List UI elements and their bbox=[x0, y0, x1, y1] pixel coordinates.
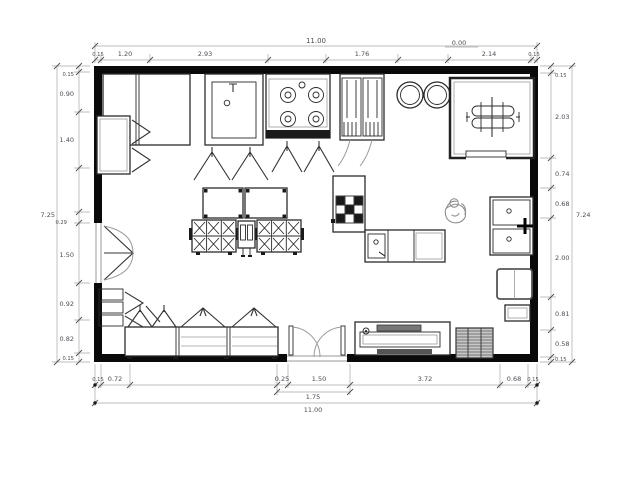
dim-label: 11.00 bbox=[304, 406, 323, 414]
dim-label: 0.15 bbox=[528, 52, 540, 58]
wall-left-lower bbox=[94, 283, 102, 362]
floor-grate bbox=[456, 328, 493, 358]
bottom-shelving bbox=[125, 305, 278, 359]
cabinet-door-swing bbox=[338, 140, 372, 166]
walk-in-cold-room bbox=[450, 78, 534, 161]
dim-left: 0.15 0.90 1.40 0.29 1.50 0.92 0.82 0.15 … bbox=[41, 63, 90, 365]
dim-label: 11.00 bbox=[306, 37, 326, 45]
burner-bank-left bbox=[189, 220, 239, 255]
dim-label: 2.00 bbox=[555, 254, 569, 262]
dim-label: 0.82 bbox=[60, 335, 74, 343]
double-swing-door bbox=[289, 326, 345, 357]
dim-label: 0.15 bbox=[62, 72, 74, 78]
wall-shelves bbox=[99, 289, 123, 326]
dim-label: 0.90 bbox=[60, 90, 74, 98]
dim-label: 1.76 bbox=[355, 50, 369, 58]
dim-label: 0.15 bbox=[62, 356, 74, 362]
sink-unit bbox=[205, 74, 263, 145]
dim-zero-label: 0.00 bbox=[452, 39, 466, 47]
prep-tables bbox=[203, 188, 287, 218]
counter-door-chevrons bbox=[194, 141, 334, 180]
side-swing-door bbox=[104, 226, 133, 280]
dim-label: 1.40 bbox=[60, 136, 74, 144]
dim-label: 0.92 bbox=[60, 300, 74, 308]
person-figure bbox=[443, 197, 468, 225]
l-shaped-counter bbox=[331, 176, 445, 262]
dim-label: 0.81 bbox=[555, 310, 569, 318]
dim-label: 0.15 bbox=[92, 377, 104, 383]
left-door-threshold bbox=[96, 223, 101, 283]
four-burner-range bbox=[266, 74, 330, 138]
dim-label: 0.74 bbox=[555, 170, 569, 178]
dim-label: 1.50 bbox=[60, 251, 74, 259]
dim-label: 0.15 bbox=[527, 377, 539, 383]
dim-label: 0.58 bbox=[555, 340, 569, 348]
dim-label: 1.50 bbox=[312, 375, 326, 383]
dim-label: 7.24 bbox=[576, 211, 590, 219]
dim-ext-lines bbox=[52, 66, 90, 362]
dim-label: 1.20 bbox=[118, 50, 132, 58]
double-bowl-sink bbox=[490, 197, 533, 255]
door-chevrons bbox=[128, 305, 276, 327]
dim-label: 0.68 bbox=[555, 200, 569, 208]
dim-label: 3.72 bbox=[418, 375, 432, 383]
floorplan-drawing: 11.00 0.15 1.20 2.93 1.76 2.14 0.15 0.00… bbox=[0, 0, 640, 480]
burner-banks bbox=[189, 220, 304, 257]
dim-label: 0.15 bbox=[555, 357, 567, 363]
base-cabinet bbox=[497, 269, 532, 299]
dim-label: 7.25 bbox=[41, 211, 55, 219]
dim-label: 0.25 bbox=[275, 375, 289, 383]
dim-label: 2.14 bbox=[482, 50, 496, 58]
dim-bottom: 0.15 0.72 0.25 1.50 3.72 0.68 0.15 1.75 … bbox=[92, 364, 540, 414]
dim-label: 2.93 bbox=[198, 50, 212, 58]
dim-right: 0.15 2.03 0.74 0.68 2.00 0.81 0.58 0.15 … bbox=[540, 63, 590, 365]
wall-top bbox=[94, 66, 538, 74]
work-table bbox=[355, 322, 450, 355]
wall-box bbox=[505, 305, 530, 321]
dim-label: 1.75 bbox=[306, 393, 320, 401]
dim-label: 0.15 bbox=[92, 52, 104, 58]
dim-label: 0.68 bbox=[507, 375, 521, 383]
dim-label: 0.15 bbox=[555, 73, 567, 79]
burner-bank-right bbox=[254, 220, 304, 255]
dim-label: 2.03 bbox=[555, 113, 569, 121]
stock-kettles bbox=[397, 82, 450, 108]
island-center-unit bbox=[238, 221, 255, 257]
bottom-door-threshold bbox=[287, 356, 347, 361]
door-cabinet bbox=[338, 74, 384, 166]
dim-top: 11.00 0.15 1.20 2.93 1.76 2.14 0.15 0.00 bbox=[92, 37, 540, 63]
floorplan-canvas: 11.00 0.15 1.20 2.93 1.76 2.14 0.15 0.00… bbox=[0, 0, 640, 480]
dim-label: 0.72 bbox=[108, 375, 122, 383]
